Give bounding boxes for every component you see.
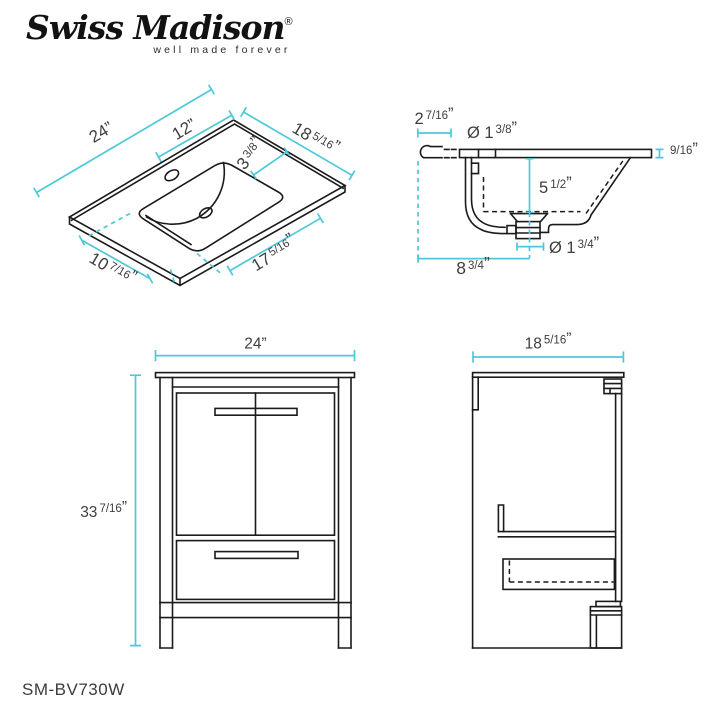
dim-label-height: 337/16”	[80, 499, 127, 521]
back-rail-top	[604, 379, 622, 394]
basin-slope-curve	[147, 163, 225, 225]
dim-label-thickness: 9/16”	[670, 140, 698, 158]
drawer	[177, 541, 335, 600]
overflow-channel	[472, 163, 479, 173]
front-view-drawing	[156, 373, 355, 648]
dim-label-overhang: 27/16”	[414, 105, 453, 128]
side-view-dimension-lines	[473, 351, 623, 362]
brand-name: Swiss Madison®	[26, 10, 293, 46]
back-panel	[616, 394, 622, 602]
back-leg	[590, 607, 621, 648]
countertop-drawing	[70, 120, 346, 286]
brand-logo: Swiss Madison® well made forever	[26, 10, 293, 56]
dim-label-basin-width: 83/4”	[456, 253, 490, 278]
front-view-dimension-lines	[130, 350, 355, 646]
sink-top-view-diagram: 24” 12” 185/16” 33/8” 107/16” 175/16”	[30, 85, 360, 300]
front-view-dimension-labels: 24” 337/16”	[80, 336, 267, 522]
faucet-hole	[163, 168, 180, 183]
side-view-drawing	[473, 373, 624, 648]
registered-mark: ®	[285, 16, 293, 28]
vanity-front-view-diagram: 24” 337/16”	[75, 330, 385, 660]
vanity-top	[156, 373, 355, 378]
top-view-dimension-lines	[34, 85, 355, 284]
vanity-top-side	[473, 373, 624, 378]
dim-label-24: 24”	[86, 118, 117, 147]
dim-label-faucet-dia: Ø 13/8”	[467, 119, 517, 142]
section-dimension-labels: 27/16” Ø 13/8” 9/16” 51/2” Ø 13/4” 83/4”	[414, 105, 697, 278]
drawer-handle	[215, 552, 298, 559]
dim-label-depth: 185/16”	[525, 331, 572, 353]
brand-name-text: Swiss Madison	[26, 8, 285, 47]
interior-shelf	[498, 505, 615, 537]
dim-label-18-5-16: 185/16”	[289, 114, 344, 160]
dim-label-width: 24”	[244, 336, 266, 353]
drain-assembly	[507, 214, 548, 239]
sink-section-view-diagram: 27/16” Ø 13/8” 9/16” 51/2” Ø 13/4” 83/4”	[395, 95, 715, 290]
countertop-edge-profile	[420, 146, 442, 158]
section-drawing	[420, 146, 651, 239]
model-number: SM-BV730W	[22, 680, 125, 700]
drawer-side	[503, 559, 614, 589]
countertop-slab	[460, 149, 652, 157]
vanity-side-view-diagram: 185/16”	[430, 330, 710, 660]
faucet-hole-marks	[479, 149, 496, 157]
dim-label-drain-dia: Ø 13/4”	[549, 234, 599, 257]
side-view-dimension-labels: 185/16”	[525, 331, 572, 353]
spec-sheet: Swiss Madison® well made forever 24” 12”	[0, 0, 720, 720]
dim-label-basin-depth: 51/2”	[539, 174, 572, 197]
dim-label-12: 12”	[169, 115, 200, 144]
